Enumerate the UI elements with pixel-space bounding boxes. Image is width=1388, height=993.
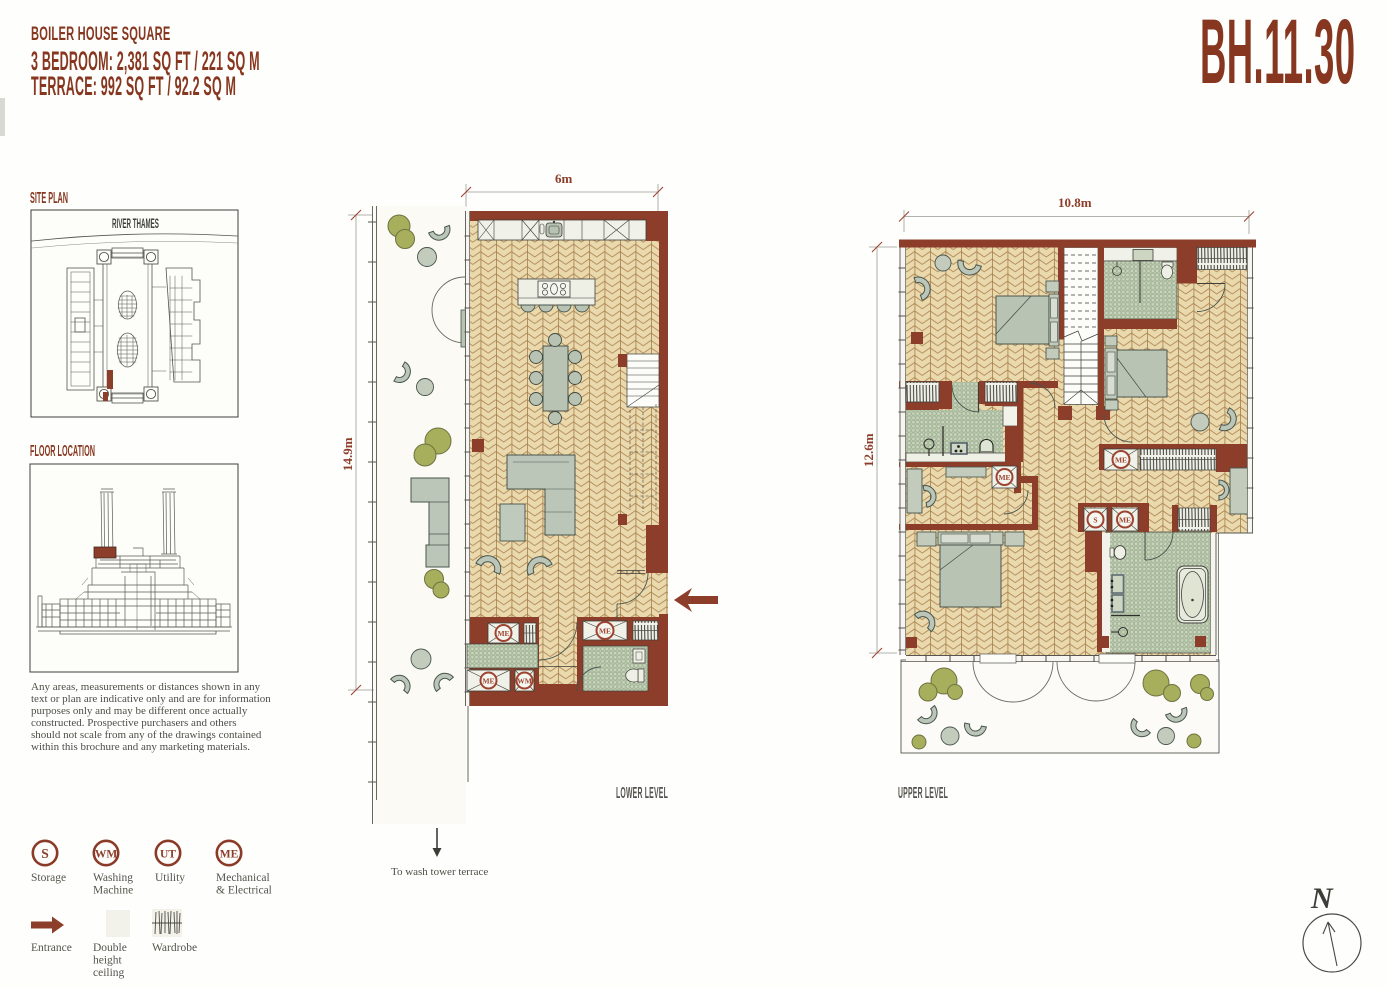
svg-text:14.9m: 14.9m [340,437,355,471]
svg-text:ME: ME [482,676,494,685]
svg-text:RIVER THAMES: RIVER THAMES [112,216,159,231]
svg-text:ME: ME [220,849,239,861]
svg-text:S: S [1093,515,1097,524]
svg-text:Washing: Washing [93,872,133,884]
svg-text:To wash tower terrace: To wash tower terrace [391,866,488,878]
svg-text:UT: UT [160,849,176,861]
svg-text:should not scale from any of t: should not scale from any of the drawing… [31,729,262,741]
svg-text:LOWER LEVEL: LOWER LEVEL [616,784,668,802]
svg-text:ME: ME [1119,515,1131,524]
svg-text:Utility: Utility [155,872,185,884]
svg-text:WM: WM [95,849,118,861]
svg-text:BOILER HOUSE SQUARE: BOILER HOUSE SQUARE [31,24,170,45]
svg-text:N: N [1310,882,1334,915]
svg-text:10.8m: 10.8m [1058,195,1092,210]
svg-text:ceiling: ceiling [93,967,125,979]
svg-text:Entrance: Entrance [31,942,72,954]
svg-text:Any areas, measurements or dis: Any areas, measurements or distances sho… [31,681,261,693]
svg-text:& Electrical: & Electrical [216,885,272,897]
svg-text:height: height [93,955,123,967]
svg-text:ME: ME [497,629,509,638]
svg-text:6m: 6m [555,171,573,186]
svg-text:ME: ME [599,626,611,635]
svg-text:FLOOR LOCATION: FLOOR LOCATION [30,442,95,460]
svg-text:text or plan are indicative on: text or plan are indicative only and are… [31,693,271,705]
svg-text:Storage: Storage [31,872,66,884]
svg-text:Wardrobe: Wardrobe [152,942,197,954]
svg-text:BH.11.30: BH.11.30 [1200,0,1355,103]
svg-text:WM: WM [517,676,532,685]
svg-text:constructed. Prospective purch: constructed. Prospective purchasers and … [31,717,237,729]
svg-text:Machine: Machine [93,885,133,897]
svg-text:UPPER LEVEL: UPPER LEVEL [898,784,948,802]
svg-text:Double: Double [93,942,127,954]
svg-text:purposes only and may be diffe: purposes only and may be different once … [31,705,248,717]
svg-text:ME: ME [1115,455,1127,464]
svg-text:SITE PLAN: SITE PLAN [30,189,68,207]
svg-text:ME: ME [998,473,1010,482]
svg-text:12.6m: 12.6m [861,433,876,467]
svg-text:TERRACE: 992 SQ FT / 92.2 SQ M: TERRACE: 992 SQ FT / 92.2 SQ M [31,72,236,101]
svg-text:S: S [41,846,49,861]
svg-text:Mechanical: Mechanical [216,872,270,884]
svg-text:within this brochure and any m: within this brochure and any marketing m… [31,741,250,753]
